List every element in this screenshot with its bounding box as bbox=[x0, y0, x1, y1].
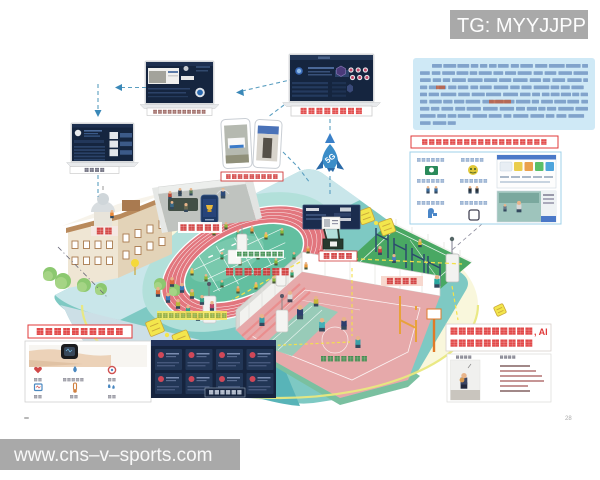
svg-text:, AI: , AI bbox=[534, 327, 548, 337]
svg-text:28: 28 bbox=[565, 416, 572, 422]
svg-text:www.cns–v–sports.com: www.cns–v–sports.com bbox=[13, 445, 213, 466]
svg-text:TG: MYYJJPP: TG: MYYJJPP bbox=[457, 15, 586, 37]
